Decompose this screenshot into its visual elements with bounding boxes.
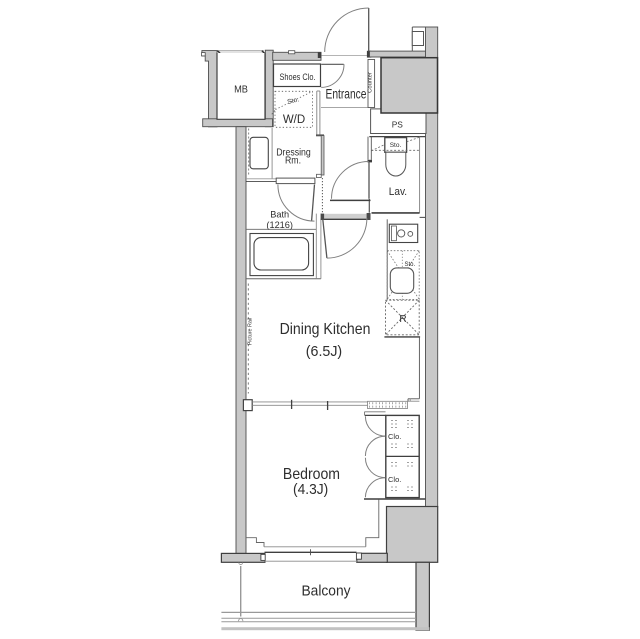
svg-text:Lav.: Lav. — [389, 186, 407, 198]
svg-text:Bath: Bath — [270, 210, 289, 220]
svg-text:Counter: Counter — [367, 72, 373, 93]
svg-text:Entrance: Entrance — [326, 86, 367, 102]
svg-text:Picture Rail: Picture Rail — [247, 318, 253, 346]
svg-text:(4.3J): (4.3J) — [293, 481, 328, 497]
svg-text:Clo.: Clo. — [388, 475, 401, 484]
svg-text:R: R — [399, 314, 406, 325]
svg-text:Rm.: Rm. — [285, 155, 301, 167]
svg-text:(6.5J): (6.5J) — [306, 344, 342, 360]
svg-text:Shoes Clo.: Shoes Clo. — [279, 72, 315, 82]
svg-text:Sto.: Sto. — [390, 142, 402, 149]
svg-text:Sto.: Sto. — [404, 262, 415, 268]
svg-text:W/D: W/D — [283, 114, 305, 126]
svg-text:MB: MB — [234, 84, 248, 96]
svg-text:Balcony: Balcony — [301, 583, 351, 600]
svg-text:Clo.: Clo. — [388, 432, 401, 441]
svg-text:(1216): (1216) — [266, 220, 293, 230]
svg-text:PS: PS — [392, 119, 404, 129]
svg-text:Dining Kitchen: Dining Kitchen — [280, 322, 371, 339]
